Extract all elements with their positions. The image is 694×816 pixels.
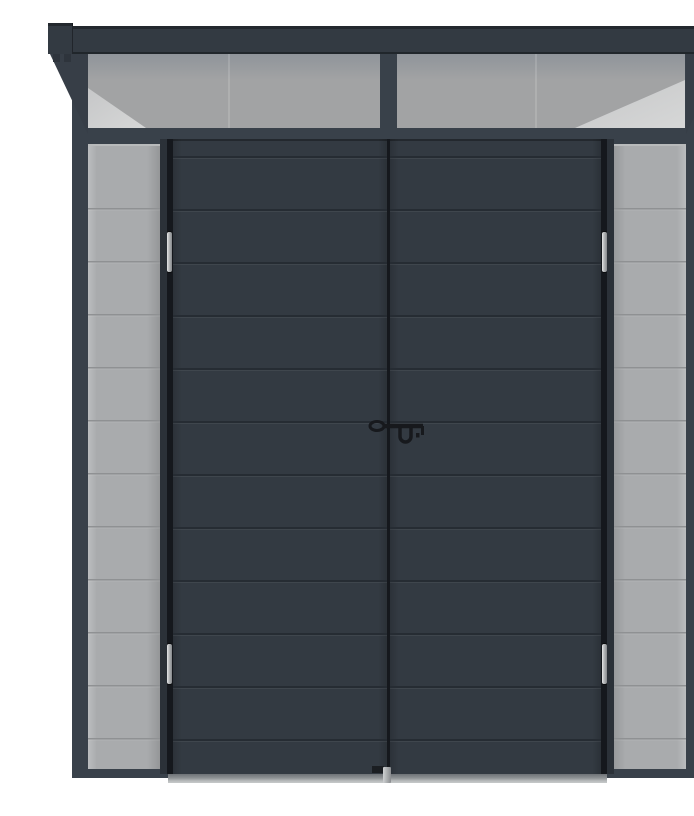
door-rib-grooves — [390, 156, 601, 774]
skylight-streak — [535, 54, 537, 128]
door-rib-grooves — [173, 156, 387, 774]
centre-latch-plate — [383, 767, 391, 783]
roof-corner-cap-left — [48, 23, 73, 54]
door-hinge-bottom-right — [602, 644, 607, 684]
skylight-reflection — [88, 88, 146, 128]
door-opening — [160, 139, 614, 774]
left-wall-panel — [88, 144, 160, 769]
right-door — [390, 139, 601, 774]
left-door-jamb — [160, 139, 167, 774]
right-wall-panel — [612, 144, 686, 769]
roof-fascia — [48, 26, 694, 54]
door-hinge-bottom-left — [167, 644, 172, 684]
roof-fixing-tab — [64, 54, 71, 62]
door-handle-icon — [366, 412, 430, 454]
skylight-left-pane — [88, 54, 380, 128]
door-hinge-top-left — [167, 232, 172, 272]
right-door-jamb — [607, 139, 614, 774]
roof-bracket-left — [50, 54, 88, 134]
door-hinge-top-right — [602, 232, 607, 272]
skylight-shadow — [88, 54, 380, 80]
skylight-shadow — [397, 54, 685, 80]
left-door — [173, 139, 387, 774]
wall-panel-ribs — [612, 208, 686, 769]
skylight-reflection — [575, 80, 685, 128]
skylight-right-pane — [397, 54, 685, 128]
wall-panel-ribs — [88, 208, 160, 769]
shed-product-image: Anthracite grey metal pent-roof garden s… — [40, 16, 694, 800]
roof-fixing-tab — [53, 54, 60, 62]
skylight-streak — [228, 54, 230, 128]
